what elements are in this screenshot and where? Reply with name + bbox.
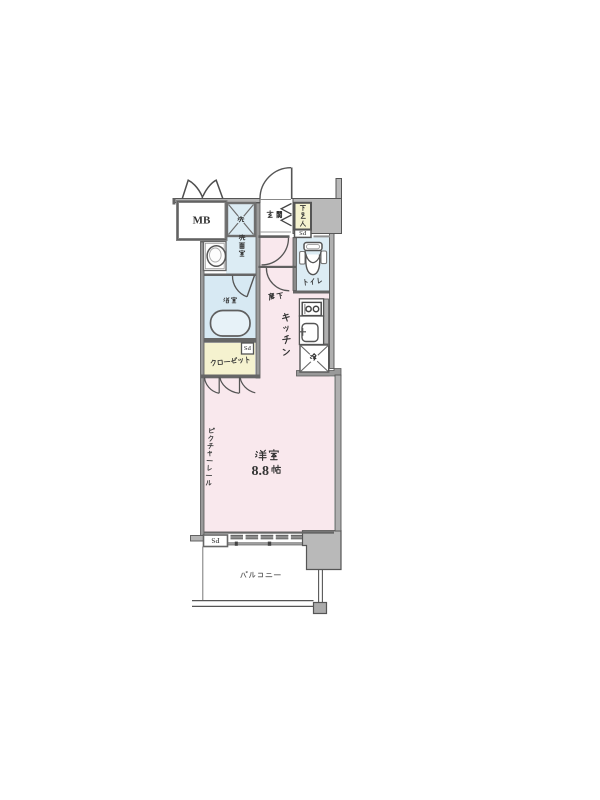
svg-text:PS: PS — [211, 536, 219, 545]
svg-text:8.8: 8.8 — [251, 464, 269, 479]
svg-text:MB: MB — [193, 215, 211, 227]
svg-text:PS: PS — [299, 229, 307, 236]
svg-text:PS: PS — [244, 344, 252, 351]
